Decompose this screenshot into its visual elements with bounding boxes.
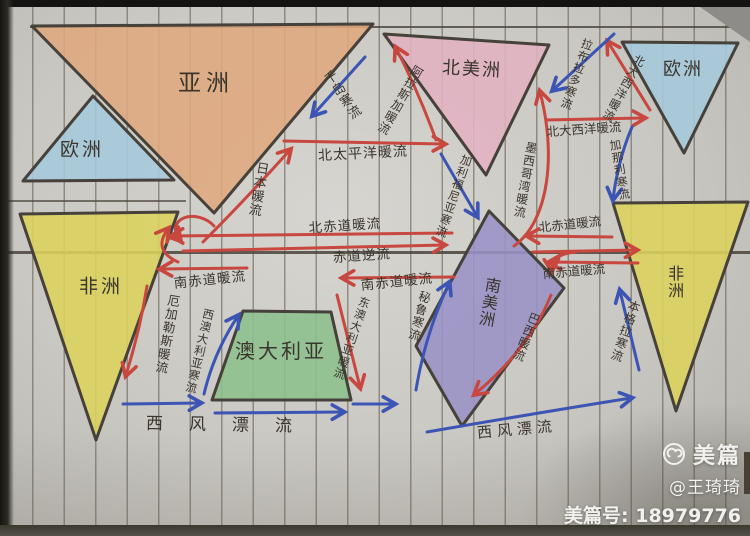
watermark-username: @王琦琦	[564, 473, 741, 498]
watermark-brand: 美篇	[693, 438, 741, 470]
photo-edge-right-sliver	[744, 452, 750, 494]
australia-label: 澳大利亚	[235, 341, 327, 361]
africa-east-label: 非洲	[666, 265, 682, 299]
europe-west-label: 欧洲	[60, 140, 104, 159]
europe-east-label: 欧洲	[663, 61, 703, 79]
watermark-account: 美篇号: 18979776	[564, 501, 741, 528]
africa-west-shape	[20, 212, 178, 440]
north-america-label: 北美洲	[442, 59, 503, 80]
north-pacific-warm-current-arrow	[284, 141, 444, 144]
west-wind-drift-arrow-2	[215, 412, 343, 413]
asia-label: 亚洲	[178, 72, 234, 95]
atlantic-counter-arrow	[533, 250, 636, 252]
equatorial-counter-current-arrow	[183, 245, 444, 251]
watermark: 美篇 @王琦琦 美篇号: 18979776	[564, 438, 741, 528]
photo-edge-left	[0, 0, 14, 536]
north-atlantic-horizontal-arrow	[546, 118, 644, 120]
meipian-logo-icon	[662, 442, 686, 466]
north-equatorial-atlantic-arrow	[528, 236, 612, 237]
africa-west-label: 非洲	[79, 277, 123, 296]
photo-edge-top	[0, 0, 750, 7]
ocean-currents-sketch-photo: 亚洲 欧洲 非洲 北美洲 欧洲 澳大利亚 南美洲 非洲 北太平洋暖流 北赤道暖流…	[0, 0, 750, 536]
west-wind-drift-arrow-1	[123, 403, 200, 404]
